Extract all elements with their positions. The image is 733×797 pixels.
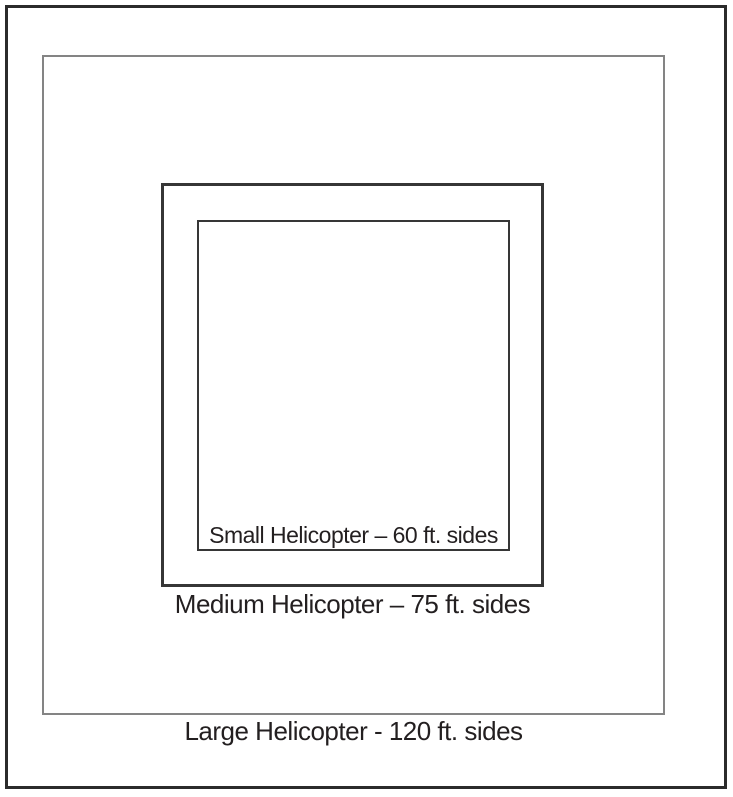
small-helipad-square bbox=[197, 220, 510, 551]
large-helipad-label: Large Helicopter - 120 ft. sides bbox=[42, 717, 665, 746]
medium-helipad-label: Medium Helicopter – 75 ft. sides bbox=[161, 590, 544, 619]
small-helipad-label: Small Helicopter – 60 ft. sides bbox=[197, 523, 510, 548]
helipad-size-diagram: Small Helicopter – 60 ft. sides Medium H… bbox=[0, 0, 733, 797]
